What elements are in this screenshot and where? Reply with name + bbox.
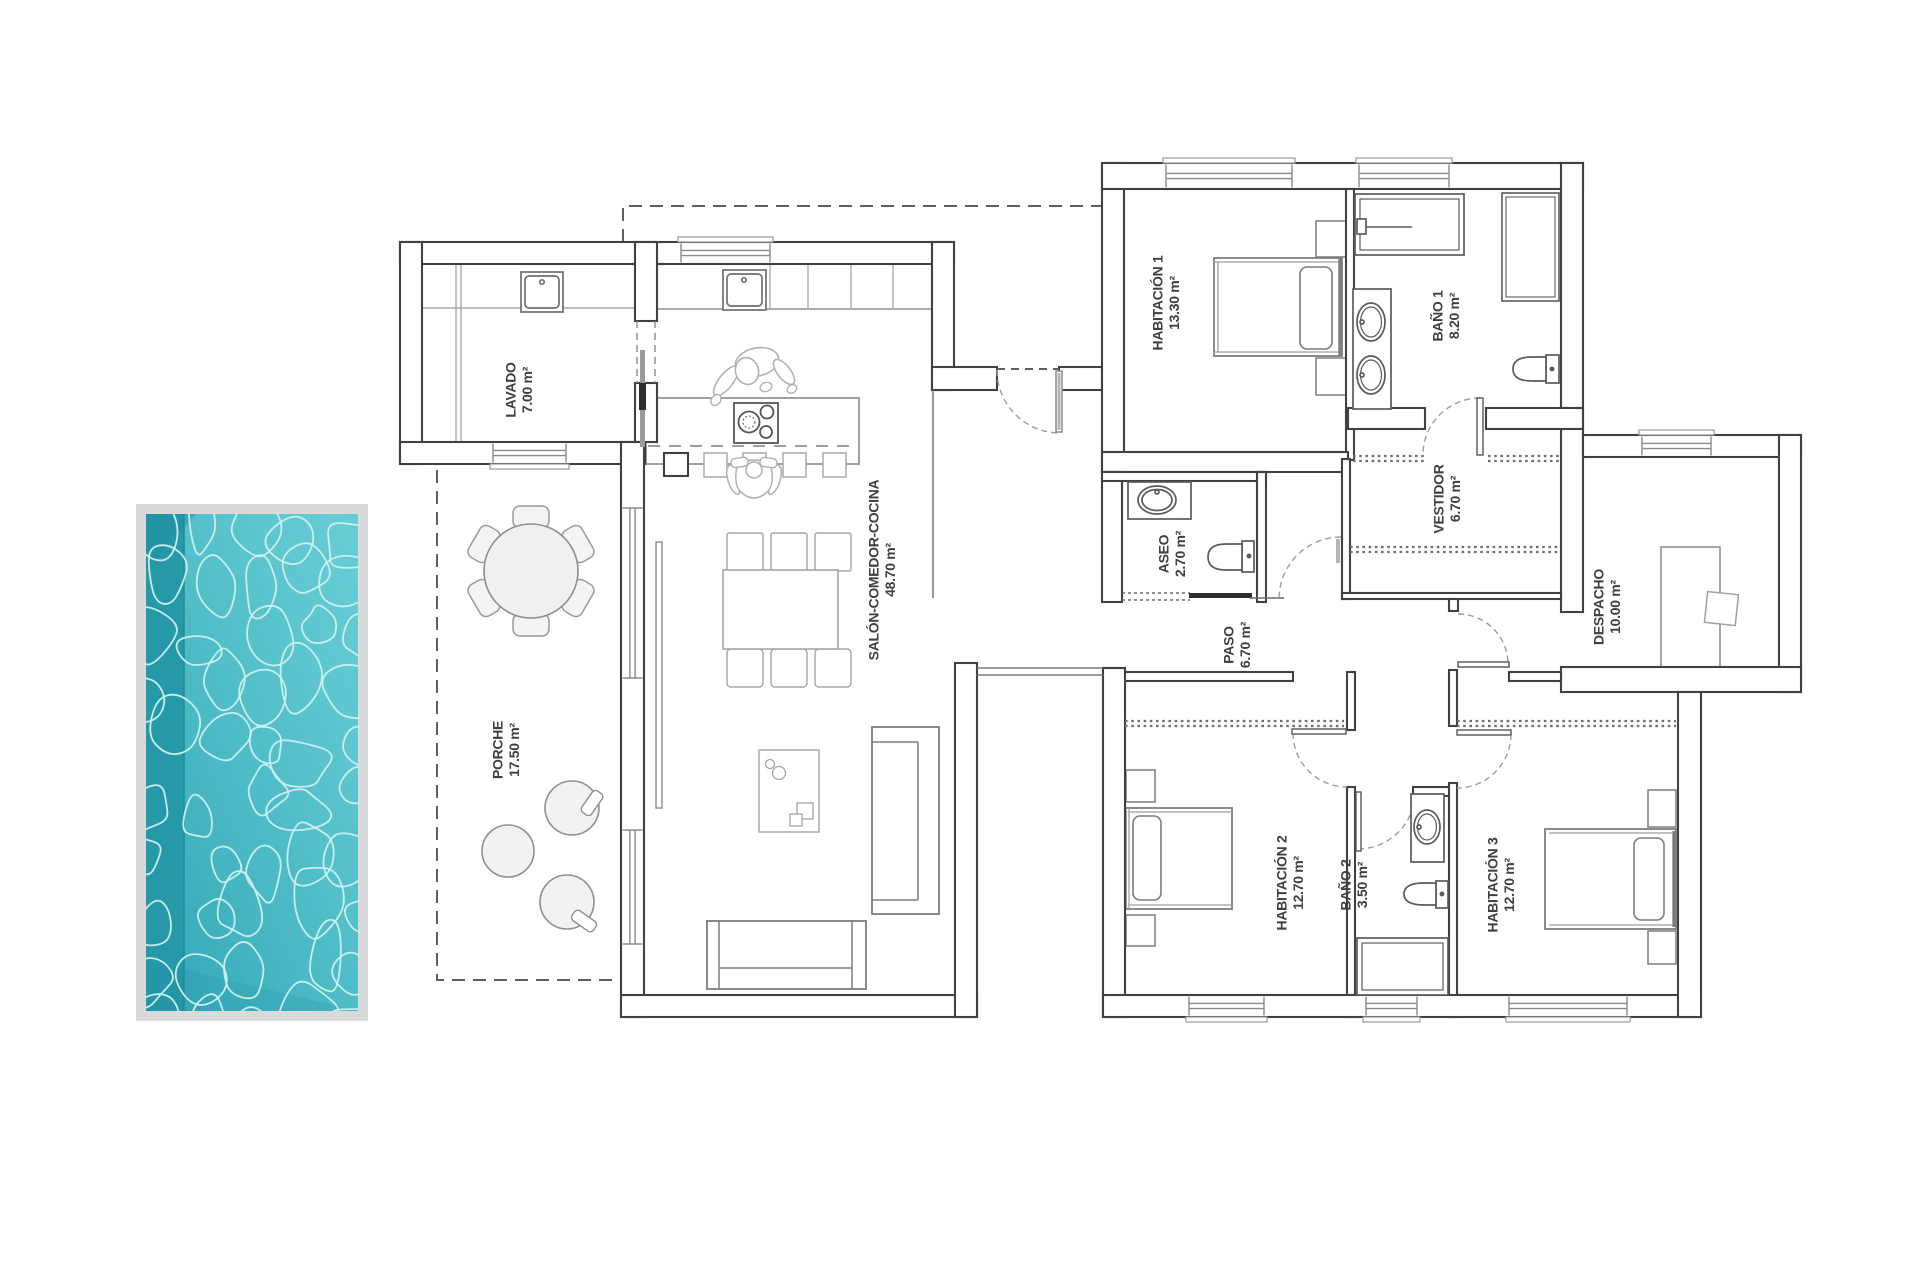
svg-text:ASEO: ASEO [1156, 534, 1172, 573]
svg-text:LAVADO: LAVADO [503, 362, 519, 418]
svg-text:17.50 m²: 17.50 m² [506, 723, 522, 777]
svg-text:6.70 m²: 6.70 m² [1237, 621, 1253, 668]
svg-text:12.70 m²: 12.70 m² [1290, 856, 1306, 910]
svg-text:BAÑO 2: BAÑO 2 [1337, 859, 1354, 911]
svg-text:PORCHE: PORCHE [490, 721, 506, 779]
svg-text:HABITACIÓN 2: HABITACIÓN 2 [1273, 835, 1290, 930]
svg-text:48.70 m²: 48.70 m² [882, 543, 898, 597]
svg-text:SALÓN-COMEDOR-COCINA: SALÓN-COMEDOR-COCINA [865, 479, 882, 660]
svg-text:3.50 m²: 3.50 m² [1354, 861, 1370, 908]
svg-text:DESPACHO: DESPACHO [1591, 569, 1607, 645]
svg-text:BAÑO 1: BAÑO 1 [1429, 290, 1446, 342]
svg-text:HABITACIÓN 1: HABITACIÓN 1 [1149, 255, 1166, 350]
svg-text:8.20 m²: 8.20 m² [1446, 292, 1462, 339]
svg-text:12.70 m²: 12.70 m² [1501, 858, 1517, 912]
svg-text:13.30 m²: 13.30 m² [1166, 276, 1182, 330]
svg-text:PASO: PASO [1221, 626, 1237, 664]
svg-text:HABITACIÓN 3: HABITACIÓN 3 [1484, 837, 1501, 932]
svg-text:10.00 m²: 10.00 m² [1607, 580, 1623, 634]
svg-text:2.70 m²: 2.70 m² [1172, 530, 1188, 577]
svg-text:7.00 m²: 7.00 m² [519, 366, 535, 413]
svg-text:6.70 m²: 6.70 m² [1447, 475, 1463, 522]
svg-text:VESTIDOR: VESTIDOR [1431, 464, 1447, 533]
